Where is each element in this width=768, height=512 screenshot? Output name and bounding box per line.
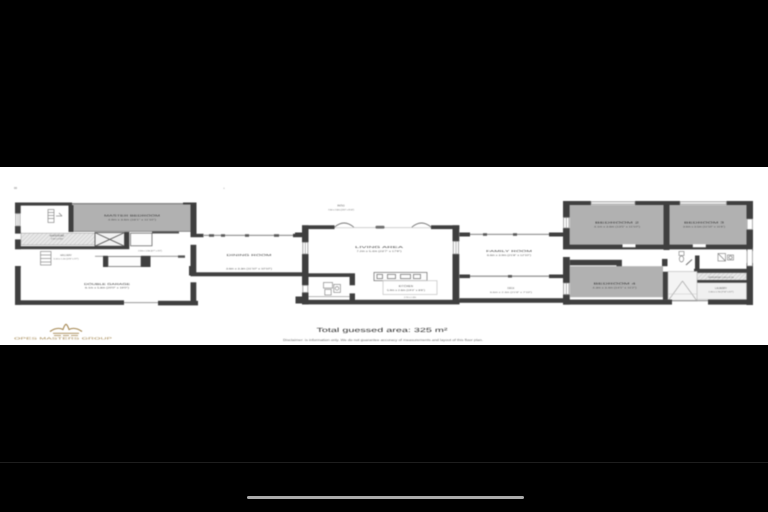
svg-text:DOUBLE GARAGE: DOUBLE GARAGE xyxy=(84,282,130,286)
svg-text:Total guessed area: 325 m²: Total guessed area: 325 m² xyxy=(317,327,448,334)
svg-text:WARDROBE 2.4m x 0.7m: WARDROBE 2.4m x 0.7m xyxy=(708,276,734,279)
svg-text:7.2m x 5.4m (23'7" x 17'9"): 7.2m x 5.4m (23'7" x 17'9") xyxy=(357,250,402,253)
svg-text:LAUNDRY: LAUNDRY xyxy=(715,287,727,290)
svg-text:BEDROOM 3: BEDROOM 3 xyxy=(684,221,725,225)
svg-text:DINING ROOM: DINING ROOM xyxy=(227,253,274,257)
svg-text:OPES MASTERS GROUP: OPES MASTERS GROUP xyxy=(14,337,114,341)
svg-text:3.6m x 3.5m (11'10" x 11'6"): 3.6m x 3.5m (11'10" x 11'6") xyxy=(683,226,725,229)
svg-text:PATIO: PATIO xyxy=(337,205,344,208)
svg-text:7.0m x 3.0m (23'0" x 9'10"): 7.0m x 3.0m (23'0" x 9'10") xyxy=(328,208,354,211)
svg-text:x: x xyxy=(223,187,225,190)
svg-text:Disclaimer: is information onl: Disclaimer: is information only. We do n… xyxy=(283,338,483,342)
svg-text:5.9m x 2.6m (19'4" x 8'6"): 5.9m x 2.6m (19'4" x 8'6") xyxy=(387,289,425,292)
svg-text:2.6m x 0.9m: 2.6m x 0.9m xyxy=(51,238,63,241)
svg-text:WARDROBE: WARDROBE xyxy=(50,234,65,237)
svg-text:6.6m x 3.9m (21'8" x 12'10"): 6.6m x 3.9m (21'8" x 12'10") xyxy=(487,254,531,257)
svg-text:BEDROOM 4: BEDROOM 4 xyxy=(594,282,637,286)
svg-text:DECK: DECK xyxy=(508,287,515,290)
svg-text:4.3m x 3.4m (14'1" x 11'2"): 4.3m x 3.4m (14'1" x 11'2") xyxy=(593,286,637,289)
svg-text:MASTER BEDROOM: MASTER BEDROOM xyxy=(104,214,161,218)
svg-text:BEDROOM 2: BEDROOM 2 xyxy=(595,221,640,225)
svg-text:6.1m x 5.8m (20'0" x 19'0"): 6.1m x 5.8m (20'0" x 19'0") xyxy=(85,287,129,290)
svg-text:2.0m x 1.0m (6'7" x 3'3"): 2.0m x 1.0m (6'7" x 3'3") xyxy=(138,250,162,253)
svg-text:HALLWAY: HALLWAY xyxy=(60,254,72,257)
svg-text:4.9m x 3.6m (16'1" x 11'10"): 4.9m x 3.6m (16'1" x 11'10") xyxy=(108,218,156,221)
svg-text:2.4m x 1.7m (7'10" x 5'7"): 2.4m x 1.7m (7'10" x 5'7") xyxy=(709,290,734,293)
svg-text:4.1m x 3.6m (13'5" x 11'10"): 4.1m x 3.6m (13'5" x 11'10") xyxy=(594,226,640,229)
svg-text:3.6m x 3.3m (11'10" x 10'10"): 3.6m x 3.3m (11'10" x 10'10") xyxy=(226,268,272,271)
svg-text:6.6m x 2.4m (21'8" x 7'10"): 6.6m x 2.4m (21'8" x 7'10") xyxy=(490,291,532,294)
svg-text:FAMILY ROOM: FAMILY ROOM xyxy=(486,249,534,253)
svg-text:KITCHEN: KITCHEN xyxy=(399,284,413,288)
svg-text:4.1m x 1.1m (13'5" x 3'7"): 4.1m x 1.1m (13'5" x 3'7") xyxy=(54,258,79,261)
svg-text:2.7m x 1.0m: 2.7m x 1.0m xyxy=(404,296,416,299)
svg-text:LIVING AREA: LIVING AREA xyxy=(355,245,403,249)
